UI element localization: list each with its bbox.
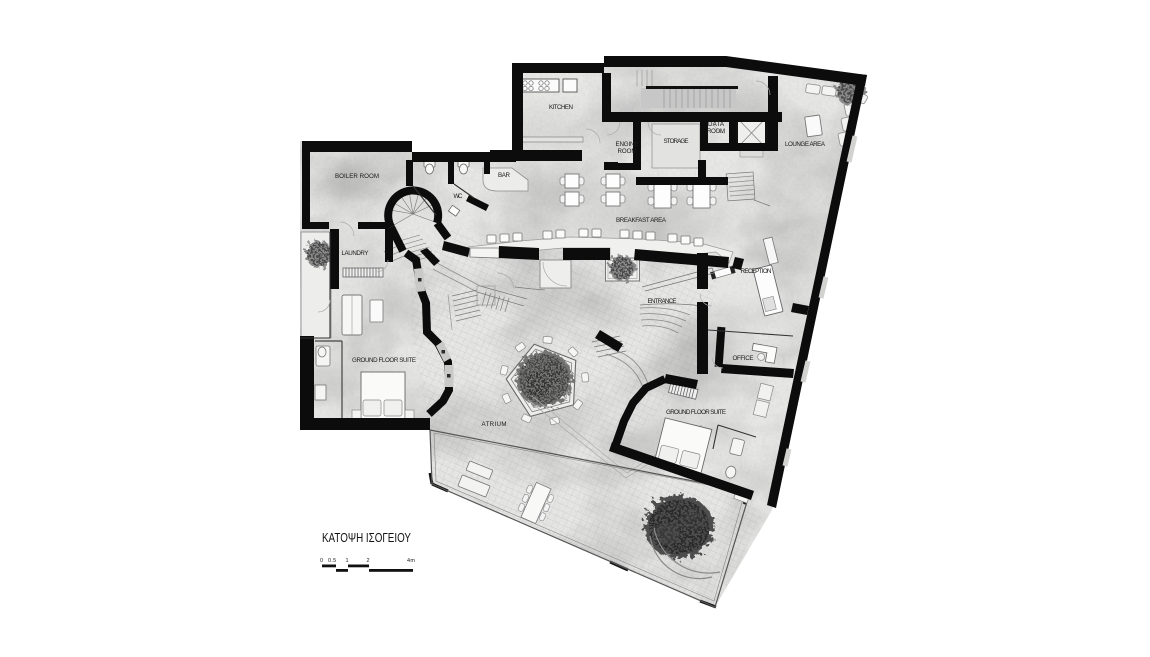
svg-text:4m: 4m	[407, 558, 415, 564]
svg-text:ΚΑΤΟΨΗ ΙΣΟΓΕΙΟΥ: ΚΑΤΟΨΗ ΙΣΟΓΕΙΟΥ	[322, 531, 412, 545]
svg-text:WC: WC	[454, 193, 464, 200]
svg-text:BOILER ROOM: BOILER ROOM	[335, 173, 379, 180]
svg-text:RECEPTION: RECEPTION	[741, 268, 772, 275]
svg-text:0.5: 0.5	[328, 558, 337, 564]
svg-text:2: 2	[367, 558, 370, 564]
svg-text:ATRIUM: ATRIUM	[482, 421, 507, 428]
svg-text:KITCHEN: KITCHEN	[549, 104, 573, 111]
svg-text:ROOM: ROOM	[618, 148, 637, 155]
svg-text:LAUNDRY: LAUNDRY	[342, 250, 369, 257]
svg-text:ROOM: ROOM	[707, 128, 725, 135]
svg-text:GROUND FLOOR SUITE: GROUND FLOOR SUITE	[666, 409, 726, 416]
svg-text:DATA: DATA	[708, 121, 725, 128]
svg-text:ENTRANCE: ENTRANCE	[648, 298, 677, 305]
svg-text:1: 1	[346, 558, 349, 564]
svg-text:OFFICE: OFFICE	[733, 355, 754, 362]
svg-text:BREAKFAST AREA: BREAKFAST AREA	[616, 217, 667, 224]
svg-text:LOUNGE AREA: LOUNGE AREA	[785, 141, 826, 148]
svg-text:ENGINE: ENGINE	[616, 141, 639, 148]
svg-text:GROUND FLOOR SUITE: GROUND FLOOR SUITE	[352, 357, 416, 364]
svg-text:0: 0	[320, 558, 323, 564]
svg-text:STORAGE: STORAGE	[664, 138, 689, 145]
svg-text:BAR: BAR	[498, 172, 511, 179]
